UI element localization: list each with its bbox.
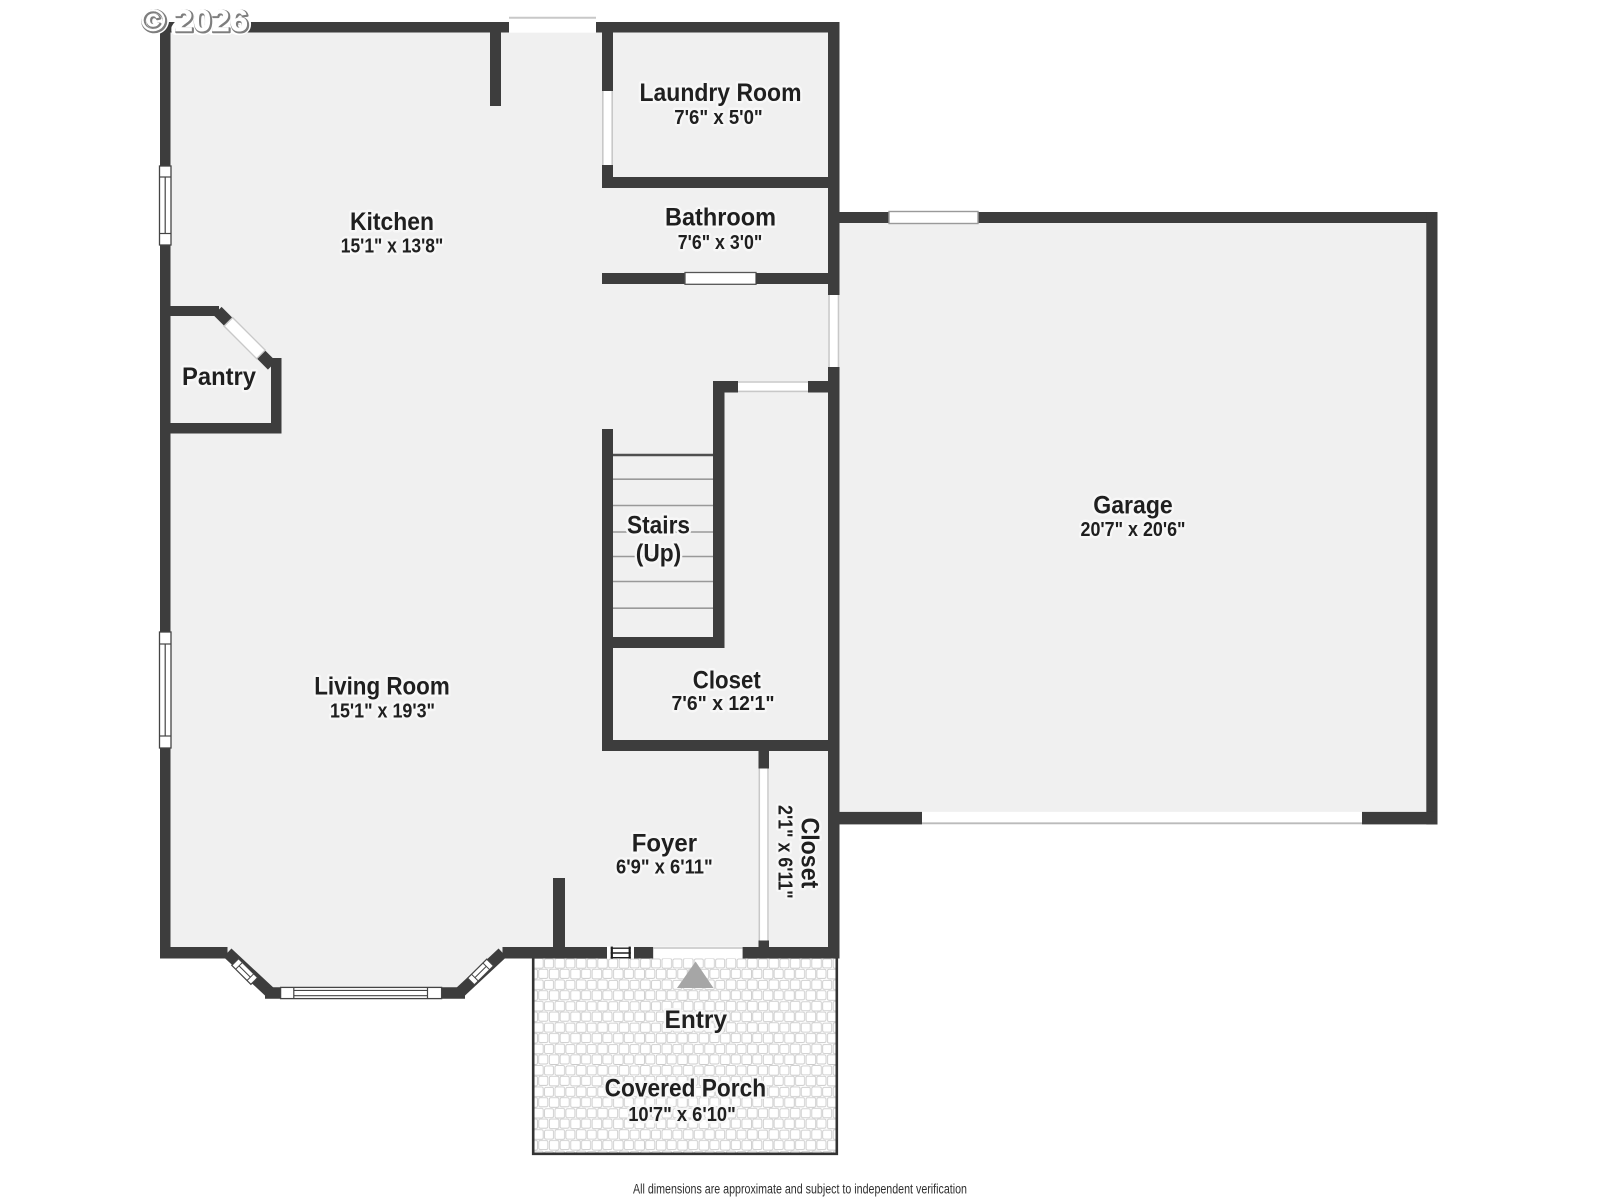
- svg-text:15'1" x 19'3": 15'1" x 19'3": [330, 701, 435, 723]
- svg-text:Garage: Garage: [1093, 492, 1173, 520]
- svg-text:Kitchen: Kitchen: [350, 208, 434, 236]
- svg-text:6'9" x 6'11": 6'9" x 6'11": [616, 857, 713, 879]
- svg-text:2'1" x 6'11": 2'1" x 6'11": [774, 805, 796, 899]
- svg-text:20'7" x 20'6": 20'7" x 20'6": [1081, 519, 1186, 541]
- svg-text:Stairs: Stairs: [627, 512, 690, 540]
- svg-text:Covered Porch: Covered Porch: [605, 1074, 767, 1102]
- svg-text:15'1" x 13'8": 15'1" x 13'8": [341, 236, 444, 258]
- svg-text:All dimensions are approximate: All dimensions are approximate and subje…: [633, 1182, 967, 1197]
- svg-text:7'6" x 5'0": 7'6" x 5'0": [674, 107, 763, 129]
- svg-text:Closet: Closet: [693, 667, 762, 695]
- svg-text:Pantry: Pantry: [182, 363, 256, 391]
- svg-text:(Up): (Up): [636, 540, 682, 568]
- svg-text:© 2026: © 2026: [141, 3, 248, 38]
- svg-text:7'6" x 3'0": 7'6" x 3'0": [678, 232, 763, 254]
- svg-text:Closet: Closet: [796, 818, 824, 889]
- svg-text:Entry: Entry: [665, 1006, 728, 1034]
- svg-text:Living Room: Living Room: [314, 673, 450, 701]
- svg-text:Laundry Room: Laundry Room: [640, 79, 802, 107]
- svg-text:7'6" x 12'1": 7'6" x 12'1": [672, 693, 775, 715]
- svg-text:Bathroom: Bathroom: [665, 203, 776, 231]
- svg-text:10'7" x 6'10": 10'7" x 6'10": [628, 1104, 736, 1126]
- svg-text:Foyer: Foyer: [632, 830, 698, 858]
